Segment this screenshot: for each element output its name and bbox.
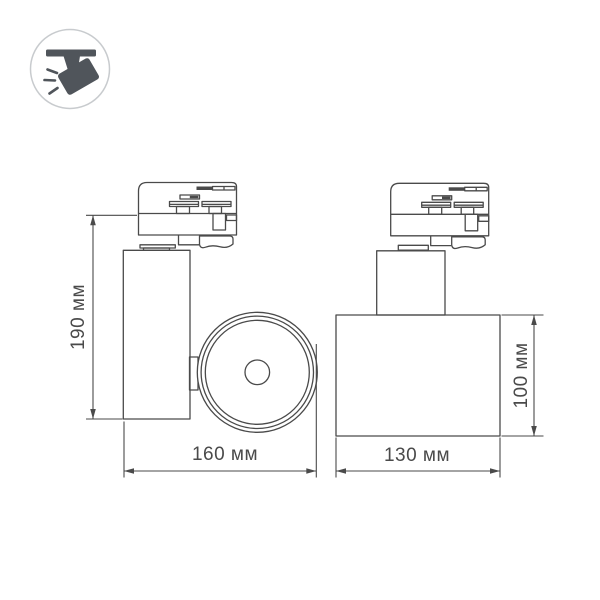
side-width-label: 160 мм [192,444,258,465]
front-height-label: 100 мм [511,342,532,408]
side-height-label: 190 мм [68,284,89,350]
side-view [123,183,317,433]
front-width-label: 130 мм [384,445,450,466]
dimension-side-height: 190 мм [68,215,137,419]
side-view-lens-outer-ring [197,312,317,432]
front-view-body [336,315,500,436]
front-view-neck [398,245,428,250]
drawing-canvas: 190 мм 160 мм 130 мм 100 мм [0,0,600,600]
icon-light-ray [45,80,56,81]
front-view-adapter [391,183,489,248]
dimension-front-width: 130 мм [336,438,500,478]
icon-track-bar [46,50,96,57]
dimension-front-height: 100 мм [502,315,544,436]
side-view-body [123,250,190,419]
side-view-adapter [139,183,237,248]
front-view [336,183,500,436]
track-spotlight-icon [31,30,110,109]
front-view-bracket [377,251,445,315]
technical-drawing-page: 190 мм 160 мм 130 мм 100 мм [0,0,600,600]
